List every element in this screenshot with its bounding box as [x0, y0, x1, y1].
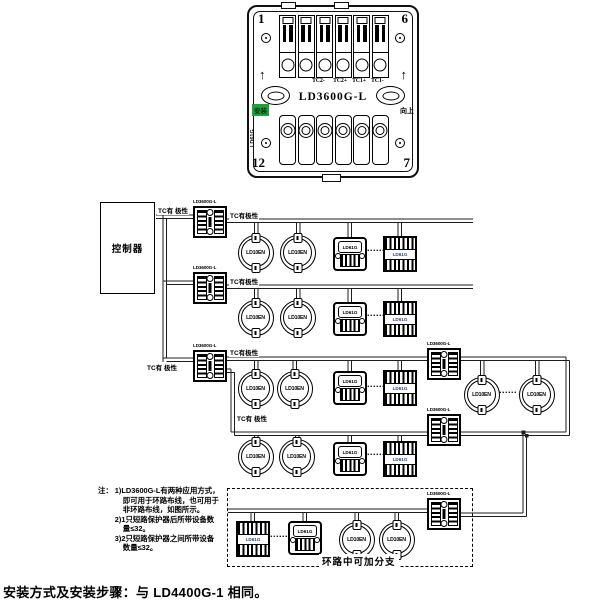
panel-side-label: LD61G	[250, 113, 256, 147]
corner-number-12: 12	[252, 155, 265, 171]
ellipsis-dots: ......	[367, 309, 385, 318]
corner-number-1: 1	[258, 11, 265, 27]
note-line: 1)LD3600G-L有两种应用方式，	[115, 486, 220, 496]
terminal-label-tc1-minus: TC1-	[371, 78, 384, 84]
polarity-label: TC有 极性	[146, 362, 178, 372]
ellipsis-dots: ......	[367, 244, 385, 253]
notes-prefix: 注：	[98, 486, 113, 553]
terminal	[279, 15, 296, 79]
screw-hole-icon	[261, 138, 271, 148]
ld10en-detector: LD10EN	[280, 235, 316, 271]
module-label: LD3600G-L	[193, 343, 216, 348]
ld3600g-module	[193, 350, 227, 382]
ld3600g-module	[427, 348, 461, 380]
wiring-slot	[279, 115, 296, 165]
terminal	[335, 15, 352, 79]
terminal-label-tc2-plus: TC2+	[333, 78, 347, 84]
ld10en-detector: LD10EN	[519, 377, 555, 413]
screw-hole-icon	[261, 33, 271, 43]
notes-block: 注： 1)LD3600G-L有两种应用方式， 即可用于环路布线，也可用于 非环路…	[98, 486, 258, 553]
module-label: LD3600G-L	[427, 341, 450, 346]
ld10en-detector: LD10EN	[238, 439, 274, 475]
ld61g-module-striped: LD61G	[383, 301, 417, 337]
ld61g-module-striped: LD61G	[383, 441, 417, 477]
ld61g-module: LD61G	[333, 237, 367, 271]
corner-number-7: 7	[404, 155, 411, 171]
polarity-label: TC有 极性	[236, 413, 268, 423]
wiring-slot	[335, 115, 352, 165]
wiring-slot	[316, 115, 333, 165]
ld10en-detector: LD10EN	[238, 300, 274, 336]
terminal-label-tc1-plus: TC1+	[352, 78, 366, 84]
ld10en-detector: LD10EN	[277, 371, 313, 407]
ld61g-module: LD61G	[333, 442, 367, 476]
bottom-slot-strip	[279, 115, 389, 165]
module-label: LD3600G-L	[193, 265, 216, 270]
ld61g-module: LD61G	[333, 371, 367, 405]
wiring-slot	[353, 115, 370, 165]
terminal-label-tc2-minus: TC2-	[312, 78, 325, 84]
ld61g-module-striped: LD61G	[383, 236, 417, 272]
ld61g-module: LD61G	[333, 302, 367, 336]
ld10en-detector: LD10EN	[464, 377, 500, 413]
polarity-label: TC有 极性	[157, 205, 189, 215]
notes-lines: 1)LD3600G-L有两种应用方式， 即可用于环路布线，也可用于 非环路布线，…	[115, 486, 220, 553]
terminal	[298, 15, 315, 79]
note-line: 数量≤32。	[115, 543, 220, 553]
ld10en-detector: LD10EN	[238, 371, 274, 407]
panel-bottom-tab	[322, 174, 341, 182]
wiring-slot	[372, 115, 389, 165]
ellipsis-dots: ......	[367, 380, 385, 389]
module-label: LD3600G-L	[193, 199, 216, 204]
ellipsis-dots: ......	[499, 386, 517, 395]
wiring-slot	[298, 115, 315, 165]
screw-hole-icon	[395, 33, 405, 43]
panel-top-tab	[281, 2, 296, 9]
ld10en-detector: LD10EN	[238, 235, 274, 271]
panel-top-tab	[334, 2, 349, 9]
ld61g-module-striped: LD61G	[383, 370, 417, 406]
device-panel: 1 6 12 7 TC2- TC2+ TC1+ TC1- ↑ ↑ LD3600G…	[247, 5, 419, 178]
ld3600g-module	[193, 272, 227, 304]
ellipsis-dots: ......	[367, 448, 385, 457]
note-line: 即可用于环路布线，也可用于	[115, 496, 220, 506]
terminal	[316, 15, 333, 79]
corner-number-6: 6	[402, 11, 409, 27]
branch-label: 环路中可加分支	[319, 554, 399, 568]
controller-box: 控制器	[100, 202, 155, 294]
note-line: 2)1只短路保护器后所带设备数	[115, 515, 220, 525]
note-line: 非环路布线，如图所示。	[115, 505, 220, 515]
up-arrow-icon: ↑	[259, 67, 266, 82]
module-label: LD3600G-L	[427, 407, 450, 412]
note-line: 3)2只短路保护器之间所带设备	[115, 534, 220, 544]
note-line: 量≤32。	[115, 524, 220, 534]
polarity-label: TC有极性	[229, 276, 259, 286]
terminal	[372, 15, 389, 79]
polarity-label: TC有极性	[229, 210, 259, 220]
terminal	[353, 15, 370, 79]
screw-hole-icon	[395, 138, 405, 148]
terminal-strip	[279, 15, 389, 79]
polarity-label: TC有极性	[229, 347, 259, 357]
ld3600g-module	[193, 206, 227, 238]
ld10en-detector: LD10EN	[279, 439, 315, 475]
up-direction-label: 向上	[400, 106, 414, 116]
panel-model-label: LD3600G-L	[249, 91, 417, 103]
ld10en-detector: LD10EN	[280, 300, 316, 336]
wiring-diagram-page: 1 6 12 7 TC2- TC2+ TC1+ TC1- ↑ ↑ LD3600G…	[0, 0, 602, 614]
ld3600g-module	[427, 414, 461, 446]
up-arrow-icon: ↑	[401, 67, 408, 82]
install-caption: 安装方式及安装步骤：与 LD4400G-1 相同。	[3, 582, 268, 601]
